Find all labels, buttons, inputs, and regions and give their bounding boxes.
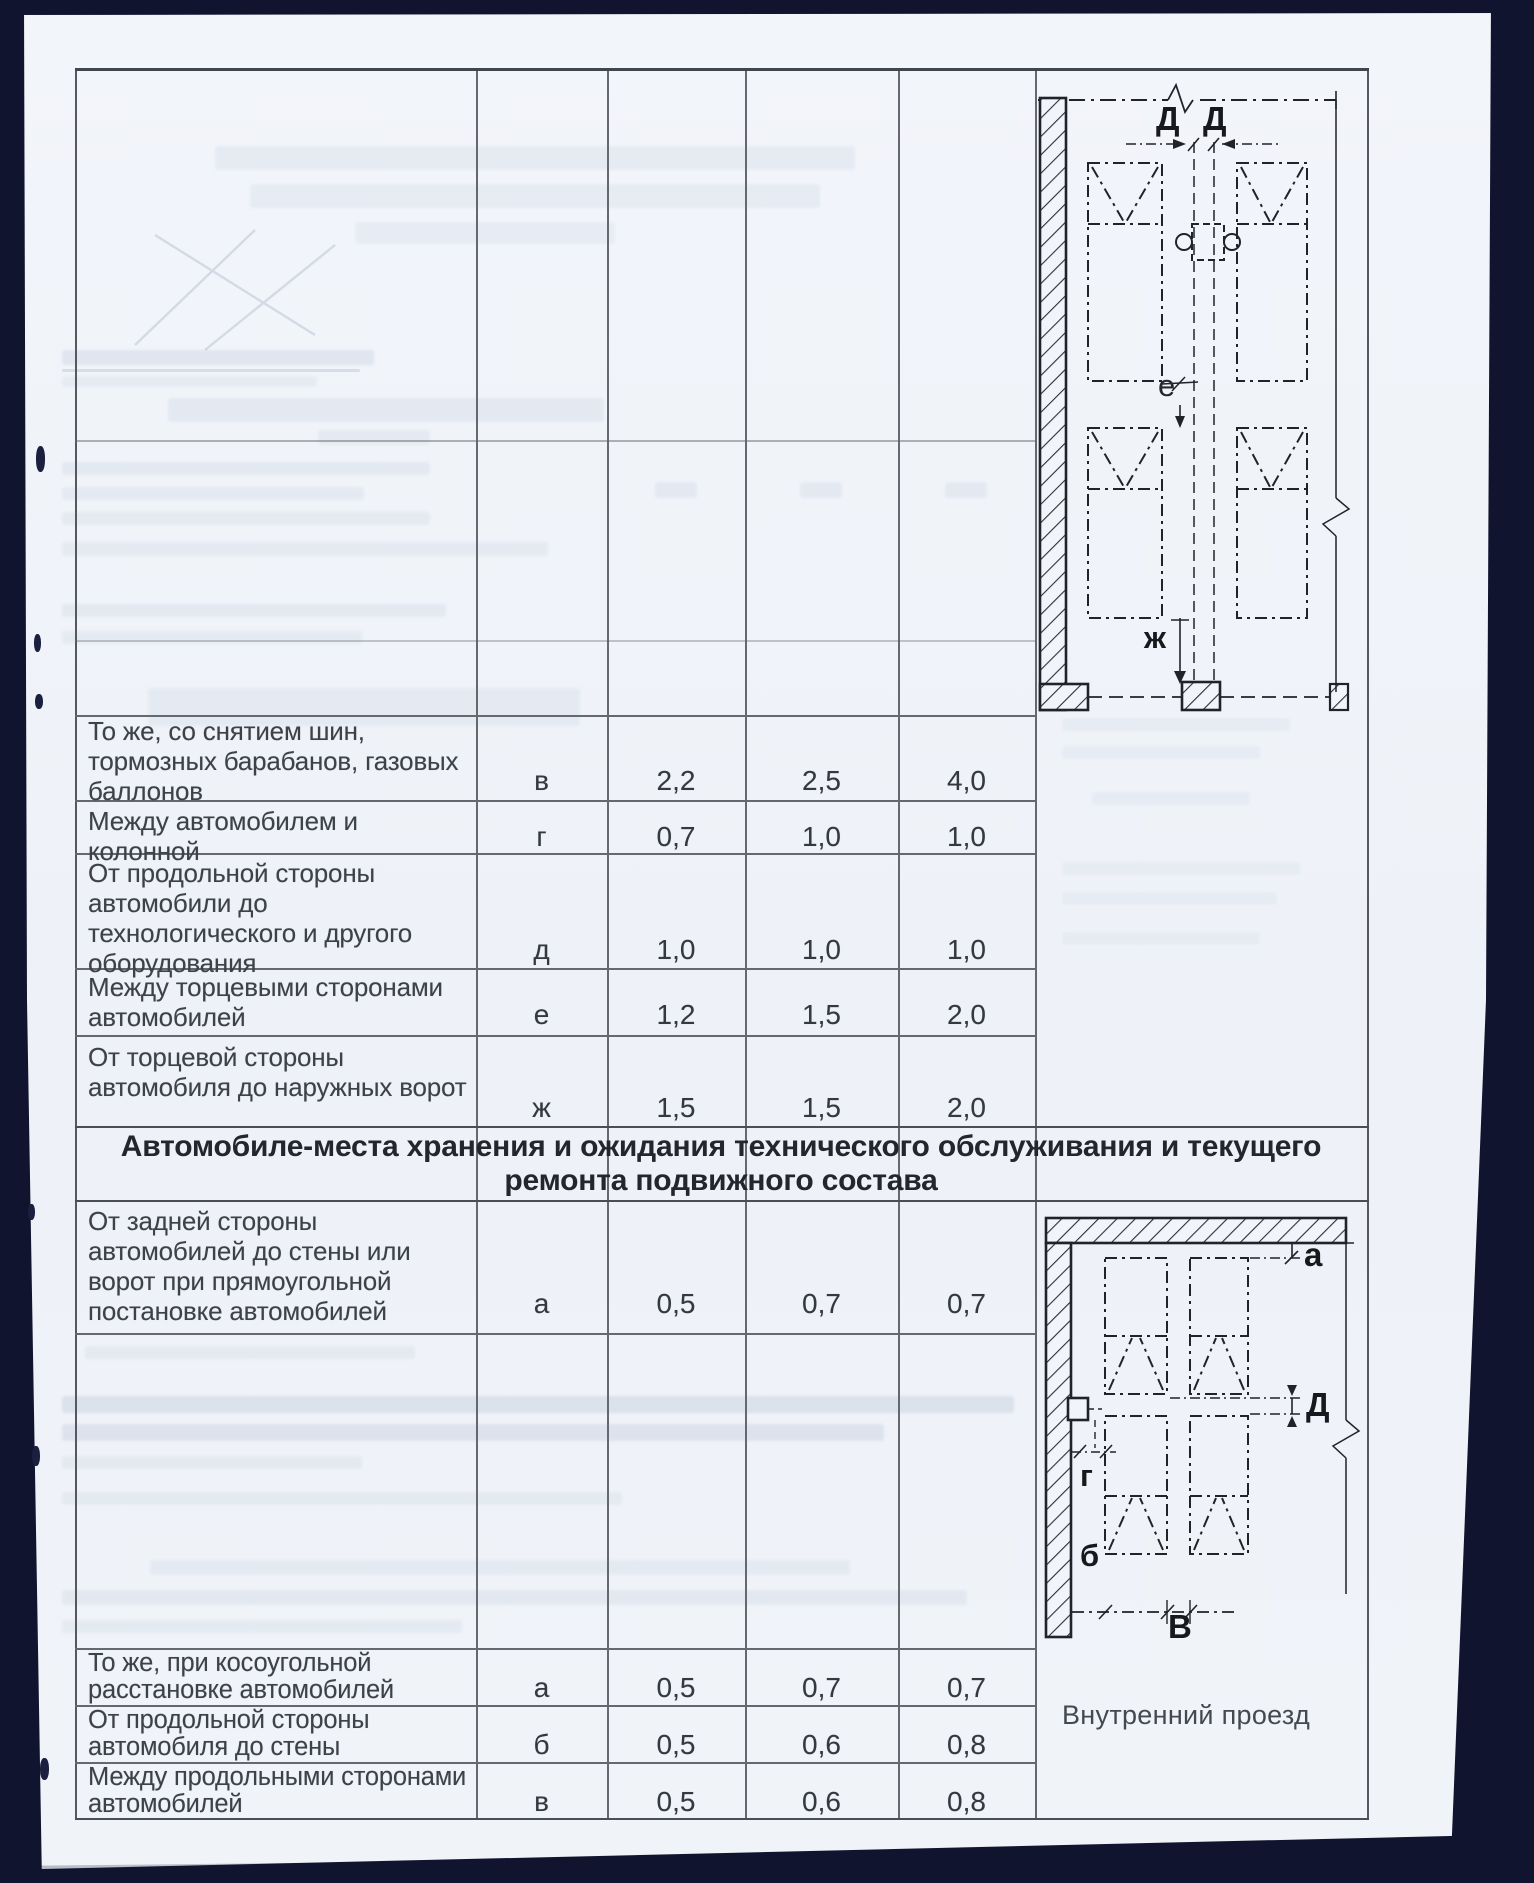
table-row-description: То же, при косоугольной расстановке авто… [88,1650,470,1704]
row-value: 0,7 [898,1672,1035,1704]
row-value: 1,5 [745,1092,898,1124]
row-value: 0,7 [745,1288,898,1320]
table-row-description: От торцевой стороны автомобиля до наружн… [88,1042,470,1102]
ghost-sketch [135,230,335,350]
table-row-description: От задней стороны автомобилей до стены и… [88,1206,470,1326]
row-letter: а [476,1672,607,1704]
row-value: 4,0 [898,765,1035,797]
row-value: 1,5 [607,1092,745,1124]
dim-label-zh: ж [1144,620,1166,656]
bottom-diagram-caption: Внутренний проезд [1062,1700,1310,1731]
dim-label-e: е [1158,368,1175,404]
row-value: 0,8 [898,1729,1035,1761]
row-value: 1,0 [898,934,1035,966]
scan-speck [36,446,45,472]
row-letter: а [476,1288,607,1320]
row-value: 1,0 [607,934,745,966]
row-letter: в [476,765,607,797]
dim-label-g: г [1080,1458,1093,1494]
table-row-description: Между продольными сторонами автомобилей [88,1764,470,1818]
table-row-description: От продольной стороны автомобиля до стен… [88,1707,470,1761]
row-value: 0,5 [607,1288,745,1320]
scan-speck [28,1204,35,1220]
row-value: 0,8 [898,1786,1035,1818]
row-value: 0,7 [607,821,745,853]
row-value: 0,7 [898,1288,1035,1320]
scan-shadow [0,1850,1534,1880]
row-letter: д [476,934,607,966]
dim-label-d1: Д [1156,100,1180,138]
dim-label-d: Д [1306,1386,1330,1424]
table-row-description: Между автомобилем и колонной [88,806,470,866]
row-value: 1,0 [745,821,898,853]
row-value: 2,0 [898,1092,1035,1124]
row-letter: б [476,1729,607,1761]
row-letter: в [476,1786,607,1818]
row-value: 2,0 [898,999,1035,1031]
row-value: 0,7 [745,1672,898,1704]
row-value: 1,5 [745,999,898,1031]
dim-label-d2: Д [1203,100,1227,138]
dim-label-b: б [1080,1538,1099,1574]
row-value: 0,5 [607,1729,745,1761]
row-value: 1,0 [898,821,1035,853]
scan-speck [40,1758,49,1780]
row-value: 1,2 [607,999,745,1031]
table-row-description: То же, со снятием шин, тормозных барабан… [88,716,470,806]
row-letter: ж [476,1092,607,1124]
row-value: 0,6 [745,1729,898,1761]
row-value: 0,5 [607,1672,745,1704]
table-row-description: От продольной стороны автомобили до техн… [88,858,470,978]
bottom-parking-diagram [1046,1218,1359,1637]
row-value: 1,0 [745,934,898,966]
row-value: 2,5 [745,765,898,797]
row-value: 0,6 [745,1786,898,1818]
section-header-line2: ремонта подвижного состава [75,1164,1367,1198]
scan-speck [34,634,41,652]
row-letter: е [476,999,607,1031]
table-row-description: Между торцевыми сторонами автомобилей [88,972,470,1032]
scanned-document-page: То же, со снятием шин, тормозных барабан… [0,0,1534,1883]
dim-label-a: а [1304,1236,1322,1274]
dim-label-v: В [1168,1608,1192,1646]
scan-speck [35,694,43,709]
scan-speck [32,1446,40,1466]
row-letter: г [476,821,607,853]
row-value: 2,2 [607,765,745,797]
section-header-line1: Автомобиле-места хранения и ожидания тех… [75,1130,1367,1164]
row-value: 0,5 [607,1786,745,1818]
top-parking-diagram [1038,85,1349,710]
